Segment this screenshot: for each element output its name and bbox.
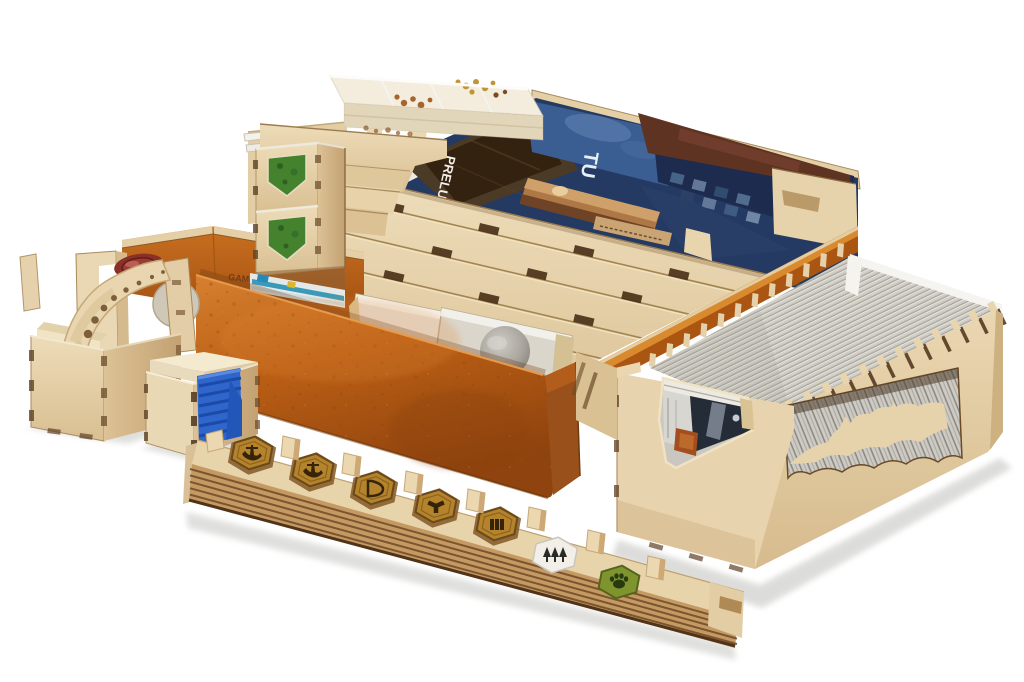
svg-text:TU: TU xyxy=(576,150,602,180)
